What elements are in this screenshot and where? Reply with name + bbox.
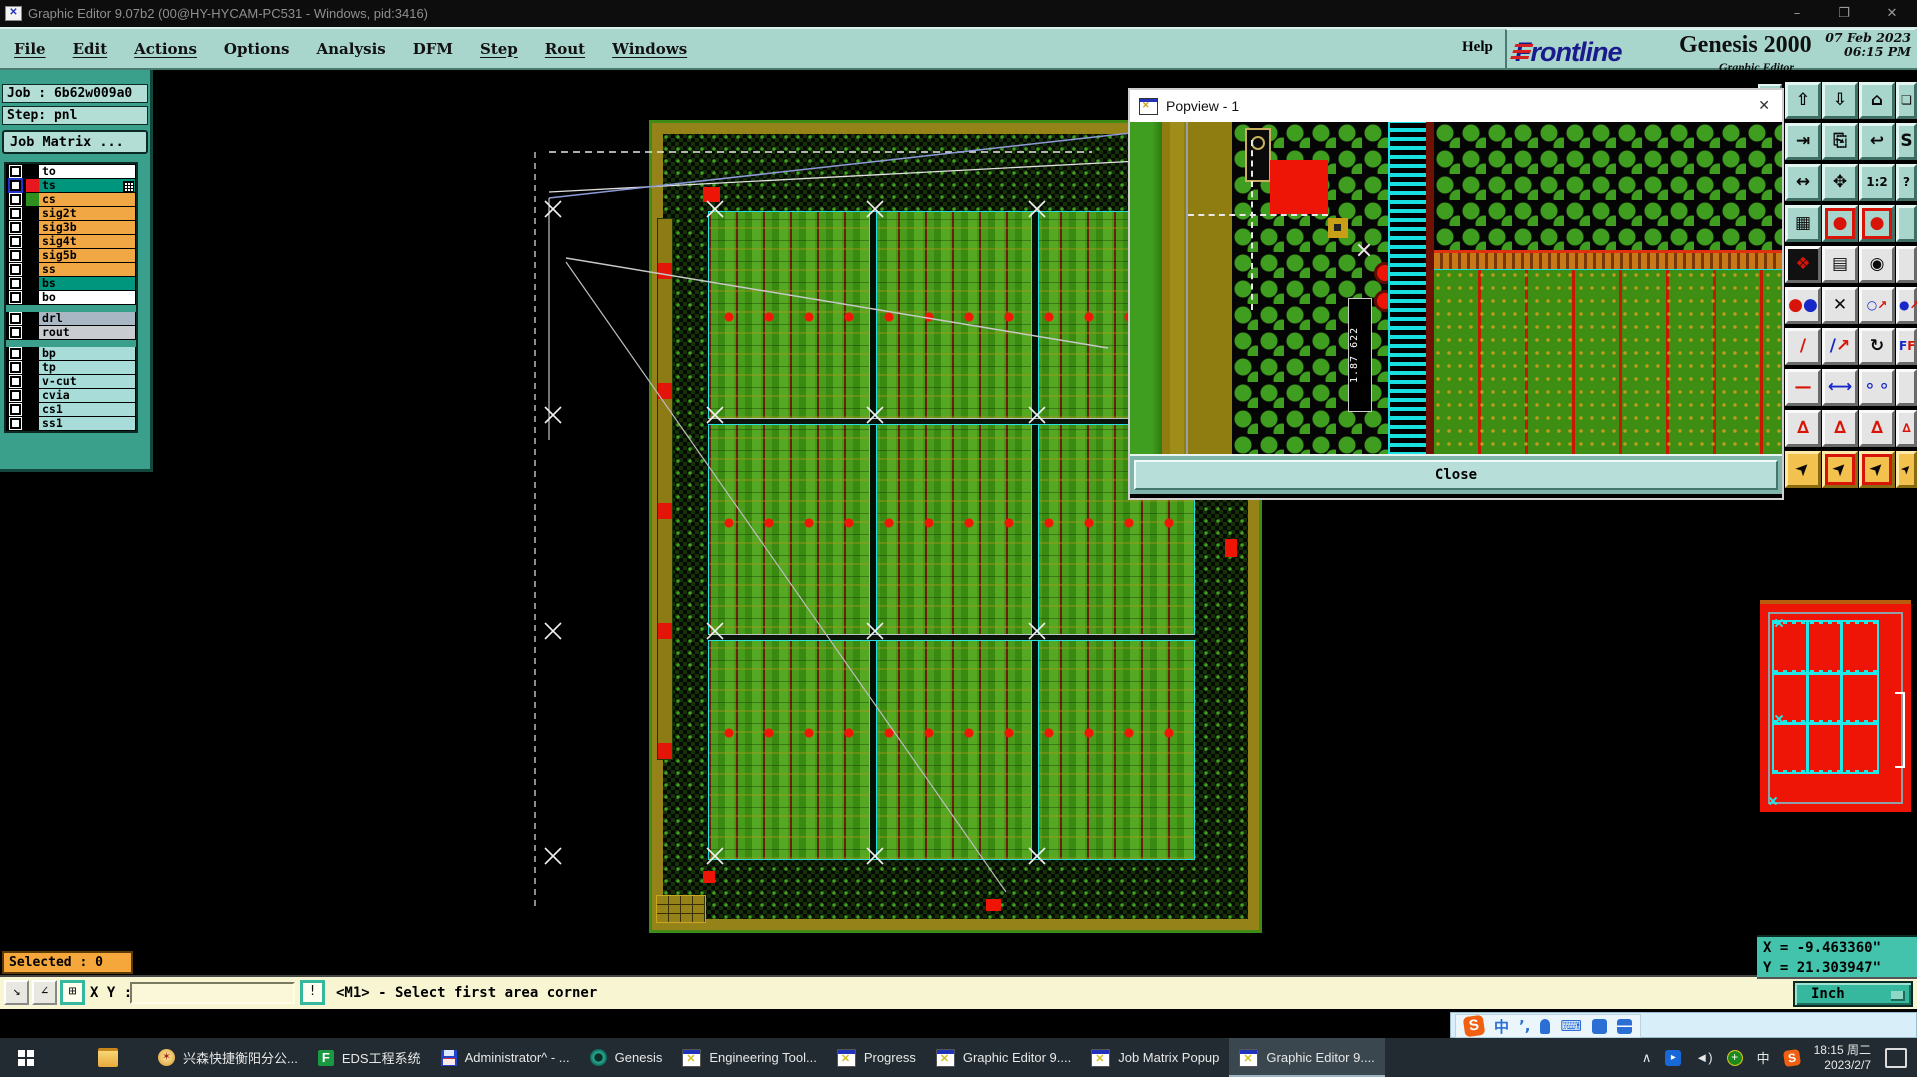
menu-step[interactable]: Step [480,40,518,58]
pv-thieving-dots-right [1434,122,1782,250]
layer-row-drl[interactable]: drl [7,312,135,325]
highlight-a-button[interactable]: ● [1822,205,1858,242]
floppy-app-icon [441,1050,457,1066]
ime-toolbox-icon[interactable] [1617,1019,1632,1034]
layer-swatch[interactable] [26,375,39,388]
layer-checkbox[interactable] [7,291,26,304]
tray-ime-language[interactable]: 中 [1757,1048,1770,1067]
layer-checkbox[interactable] [7,165,26,178]
s-shape-button[interactable]: S [1896,123,1917,160]
taskbar-app-eds[interactable]: F EDS工程系统 [308,1038,431,1077]
overview-zoom-bracket [1895,692,1905,768]
file-explorer-button[interactable] [98,1048,118,1067]
frontline-logo: Frontline [1515,37,1622,68]
spare-button-3[interactable] [1896,369,1917,406]
window-title: Graphic Editor 9.07b2 (00@HY-HYCAM-PC531… [28,6,428,21]
coord-y: Y = 21.303947" [1763,958,1917,978]
ime-microphone-icon[interactable] [1540,1019,1550,1034]
layer-swatch[interactable] [26,347,39,360]
taskbar-app-progress[interactable]: Progress [827,1038,926,1077]
units-dropdown[interactable]: Inch [1793,981,1913,1007]
tray-volume-icon[interactable]: ◄) [1695,1050,1712,1065]
layer-swatch[interactable] [26,207,39,220]
step-name-box: Step: pnl [2,106,148,125]
taskbar-app-genesis[interactable]: Genesis [580,1038,673,1077]
resize-pad-button[interactable]: ⟷ [1822,369,1858,406]
app-window-icon: ✕ [5,6,22,21]
popview-close-bar: Close [1130,454,1782,494]
layer-swatch[interactable] [26,193,39,206]
xy-coordinate-input[interactable] [130,982,295,1004]
overview-x-mark [1774,618,1784,628]
menu-actions[interactable]: Actions [134,40,197,58]
layer-row-to[interactable]: to [7,165,135,178]
measure-object-button[interactable]: ❖ [1785,246,1821,283]
layer-swatch[interactable] [26,326,39,339]
layer-checkbox[interactable] [7,403,26,416]
popview-close-button[interactable]: Close [1134,460,1778,490]
layer-checkbox[interactable] [7,179,26,192]
layer-checkbox[interactable] [7,277,26,290]
pv-coupon-pad [1245,128,1271,182]
fit-width-button[interactable]: ↔ [1785,164,1821,201]
units-area: Inch [1757,977,1917,1009]
job-sidebar: Job : 6b62w009a0 Step: pnl Job Matrix ..… [0,70,153,472]
brand-panel: Frontline Genesis 2000 Graphic Editor 07… [1505,29,1915,68]
datetime-display: 07 Feb 2023 06:15 PM [1825,31,1911,59]
grid-toggle-button[interactable]: ▦ [1785,205,1821,242]
spare-button-2[interactable] [1896,246,1917,283]
zoom-out-screen-button[interactable]: ⎘ [1822,123,1858,160]
dropdown-indicator-icon [1891,991,1905,1001]
tray-chevron-icon[interactable]: ∧ [1642,1050,1652,1066]
shell-app-icon: ✶ [158,1049,175,1066]
job-matrix-button[interactable]: Job Matrix ... [2,130,148,154]
layer-swatch[interactable] [26,277,39,290]
pan-right-button[interactable]: ⇥ [1785,123,1821,160]
home-view-button[interactable]: ⌂ [1859,82,1895,119]
popview-titlebar[interactable]: Popview - 1 ✕ [1130,90,1782,122]
pv-fiducial-square [1270,160,1328,214]
popview-viewport[interactable]: 1.87 622 [1130,122,1782,456]
layer-swatch[interactable] [26,263,39,276]
taskbar-app-graphic-editor-1[interactable]: Graphic Editor 9.... [926,1038,1081,1077]
layer-swatch[interactable] [26,361,39,374]
pv-dashed-vline [1251,140,1253,310]
surface-tool-4-button[interactable]: ∆ [1896,410,1917,447]
pv-gold-pad [1328,218,1348,238]
coordinate-readout: X = -9.463360" Y = 21.303947" [1757,935,1917,977]
select-net-button[interactable]: ➤ [1896,451,1917,488]
selected-count-badge: Selected : 0 [2,951,133,974]
tray-time: 18:15 周二 [1814,1043,1871,1058]
taskbar-app-administrator[interactable]: Administrator^ - ... [431,1038,580,1077]
popview-title: Popview - 1 [1166,98,1239,114]
menu-windows[interactable]: Windows [612,40,687,58]
xy-window-button[interactable]: ❏ [1896,82,1917,119]
tray-clock[interactable]: 18:15 周二 2023/2/7 [1814,1043,1871,1073]
layer-swatch[interactable] [26,221,39,234]
overview-x-mark [1768,796,1778,806]
layer-list: to ts cs sig2t sig3b sig4t sig5b ss bs b… [4,162,138,433]
taskbar-app-engineering-toolkit[interactable]: Engineering Tool... [672,1038,826,1077]
layer-swatch[interactable] [26,179,39,192]
layer-row-sig4t[interactable]: sig4t [7,235,135,248]
overview-panel-grid [1772,620,1879,774]
layer-swatch[interactable] [26,417,39,430]
pv-via-columns [1388,122,1428,456]
x-window-icon [936,1049,955,1067]
layer-checkbox[interactable] [7,361,26,374]
layer-checkbox[interactable] [7,389,26,402]
pan-center-button[interactable]: ✥ [1822,164,1858,201]
pad-tool-button[interactable]: — [1785,369,1821,406]
ime-keyboard-icon[interactable]: ⌨ [1560,1017,1582,1035]
menu-options[interactable]: Options [224,40,290,58]
menu-dfm[interactable]: DFM [413,40,453,58]
select-polygon-button[interactable]: ➤ [1859,451,1895,488]
rotate-button[interactable]: ↻ [1859,328,1895,365]
taskbar-app-job-matrix-popup[interactable]: Job Matrix Popup [1081,1038,1229,1077]
help-tool-button[interactable]: ? [1896,164,1917,201]
layer-checkbox[interactable] [7,326,26,339]
layer-swatch[interactable] [26,249,39,262]
popview-window-icon [1139,98,1158,115]
x-window-icon [1239,1049,1258,1067]
snap-mode-button[interactable]: ↘ [4,980,29,1005]
layer-checkbox[interactable] [7,235,26,248]
tray-antivirus-icon[interactable]: + [1727,1050,1743,1066]
layer-row-ss[interactable]: ss [7,263,135,276]
ime-toolbar: S 中 ’, ⌨ [1450,1012,1917,1038]
layer-row-sig3b[interactable]: sig3b [7,221,135,234]
endpoints-button[interactable]: ●● [1785,287,1821,324]
taskbar-app-xinsen[interactable]: ✶ 兴森快捷衡阳分公... [148,1038,308,1077]
layer-group-gap [6,305,136,312]
date-text: 07 Feb 2023 [1825,31,1911,45]
line-move-button[interactable]: /↗ [1822,328,1858,365]
layer-swatch[interactable] [26,389,39,402]
sogou-ime-icon[interactable]: S [1463,1015,1486,1038]
layer-checkbox[interactable] [7,375,26,388]
layer-row-rout[interactable]: rout [7,326,135,339]
menu-edit[interactable]: Edit [73,40,108,58]
menu-file[interactable]: File [14,40,46,58]
start-button[interactable] [18,1050,34,1066]
application-window: ✕ Graphic Editor 9.07b2 (00@HY-HYCAM-PC5… [0,0,1917,1077]
pan-up-button[interactable]: ⇧ [1785,82,1821,119]
select-frame-button[interactable]: ➤ [1822,451,1858,488]
layer-checkbox[interactable] [7,347,26,360]
prompt-message: <M1> - Select first area corner [336,985,597,1001]
angle-mode-button[interactable]: ∠ [32,980,57,1005]
highlight-b-button[interactable]: ● [1859,205,1895,242]
pv-dashed-hline [1188,214,1328,216]
layer-swatch[interactable] [26,235,39,248]
layer-row-bp[interactable]: bp [7,347,135,360]
popview-window: Popview - 1 ✕ 1.87 622 [1128,88,1784,500]
spare-button[interactable] [1896,205,1917,242]
layer-row-bo[interactable]: bo [7,291,135,304]
layer-row-bs[interactable]: bs [7,277,135,290]
layer-checkbox[interactable] [7,221,26,234]
layer-checkbox[interactable] [7,207,26,220]
close-button[interactable]: ✕ [1870,0,1914,27]
layer-checkbox[interactable] [7,312,26,325]
layer-row-cs1[interactable]: cs1 [7,403,135,416]
x-window-icon [682,1049,701,1067]
layer-checkbox[interactable] [7,417,26,430]
active-layer-grid-icon [123,181,134,192]
previous-view-button[interactable]: ↩ [1859,123,1895,160]
pv-red-rail [1426,122,1434,456]
x-window-icon [837,1049,856,1067]
layer-swatch[interactable] [26,165,39,178]
menu-rout[interactable]: Rout [545,40,585,58]
overview-x-mark [1774,714,1784,724]
panel-overview-window[interactable] [1760,600,1911,812]
window-titlebar: ✕ Graphic Editor 9.07b2 (00@HY-HYCAM-PC5… [0,0,1917,27]
layer-row-ss1[interactable]: ss1 [7,417,135,430]
command-bang-button[interactable]: ! [300,980,325,1005]
layer-swatch[interactable] [26,403,39,416]
tray-date: 2023/2/7 [1814,1058,1871,1073]
status-bar: ↘ ∠ ⊞ X Y : ! <M1> - Select first area c… [0,975,1757,1009]
pv-circuit-area [1434,269,1782,456]
ime-skin-icon[interactable] [1592,1019,1607,1034]
eds-app-icon: F [318,1050,334,1066]
ime-icon-group: S 中 ’, ⌨ [1455,1014,1641,1038]
spot-check-button[interactable]: ◉ [1859,246,1895,283]
layer-row-cs[interactable]: cs [7,193,135,206]
layer-checkbox[interactable] [7,263,26,276]
layer-checkbox[interactable] [7,249,26,262]
layer-checkbox[interactable] [7,193,26,206]
layer-row-sig2t[interactable]: sig2t [7,207,135,220]
surface-tool-3-button[interactable]: ∆ [1859,410,1895,447]
ime-language-icon[interactable]: 中 [1494,1016,1509,1037]
copy-reference-button[interactable]: ○↗ [1859,287,1895,324]
line-tool-button[interactable]: / [1785,328,1821,365]
taskbar: ✶ 兴森快捷衡阳分公... F EDS工程系统 Administrator^ -… [0,1038,1917,1077]
notification-center-icon[interactable] [1885,1048,1907,1068]
pv-board-edge [1130,122,1162,456]
minimize-button[interactable]: – [1775,0,1819,27]
delete-button[interactable]: ✕ [1822,287,1858,324]
taskbar-app-graphic-editor-2[interactable]: Graphic Editor 9.... [1229,1038,1384,1077]
zoom-ratio-button[interactable]: 1:2 [1859,164,1895,201]
menu-help[interactable]: Help [1462,39,1493,56]
system-tray: ∧ ▸ ◄) + 中 S 18:15 周二 2023/2/7 [1642,1043,1917,1073]
tray-app-icon[interactable]: ▸ [1665,1050,1681,1066]
ruler-measure-button[interactable]: ▤ [1822,246,1858,283]
layer-row-tp[interactable]: tp [7,361,135,374]
layer-swatch[interactable] [26,312,39,325]
layer-row-cvia[interactable]: cvia [7,389,135,402]
time-text: 06:15 PM [1825,45,1911,59]
surface-tool-1-button[interactable]: ∆ [1785,410,1821,447]
pv-cursor-x-mark [1356,242,1372,258]
grid-snap-button[interactable]: ⊞ [60,980,85,1005]
hole-pattern-button[interactable]: ⚬⚬ [1859,369,1895,406]
genesis-app-icon [590,1049,607,1066]
pv-frame-strip [1162,122,1232,456]
ime-punctuation-icon[interactable]: ’, [1519,1017,1530,1035]
surface-tool-2-button[interactable]: ∆ [1822,410,1858,447]
maximize-button[interactable]: ❐ [1822,0,1866,27]
layer-swatch[interactable] [26,291,39,304]
screen-capture-button[interactable]: ⇩ [1822,82,1858,119]
select-single-button[interactable]: ➤ [1785,451,1821,488]
menu-analysis[interactable]: Analysis [316,40,385,58]
tray-sogou-icon[interactable]: S [1783,1048,1801,1066]
move-reference-button[interactable]: ●↗ [1896,287,1917,324]
product-name: Genesis 2000 [1679,32,1812,59]
popview-close-icon[interactable]: ✕ [1758,98,1770,114]
layer-group-gap [6,340,136,347]
job-name-box: Job : 6b62w009a0 [2,84,148,103]
xy-input-label: X Y : [90,985,132,1001]
layer-row-ts[interactable]: ts [7,179,135,192]
coord-x: X = -9.463360" [1763,938,1917,958]
layer-row-v-cut[interactable]: v-cut [7,375,135,388]
layer-row-sig5b[interactable]: sig5b [7,249,135,262]
pv-ruler-label: 1.87 622 [1348,298,1372,412]
mirror-button[interactable]: FF [1896,328,1917,365]
x-window-icon [1091,1049,1110,1067]
